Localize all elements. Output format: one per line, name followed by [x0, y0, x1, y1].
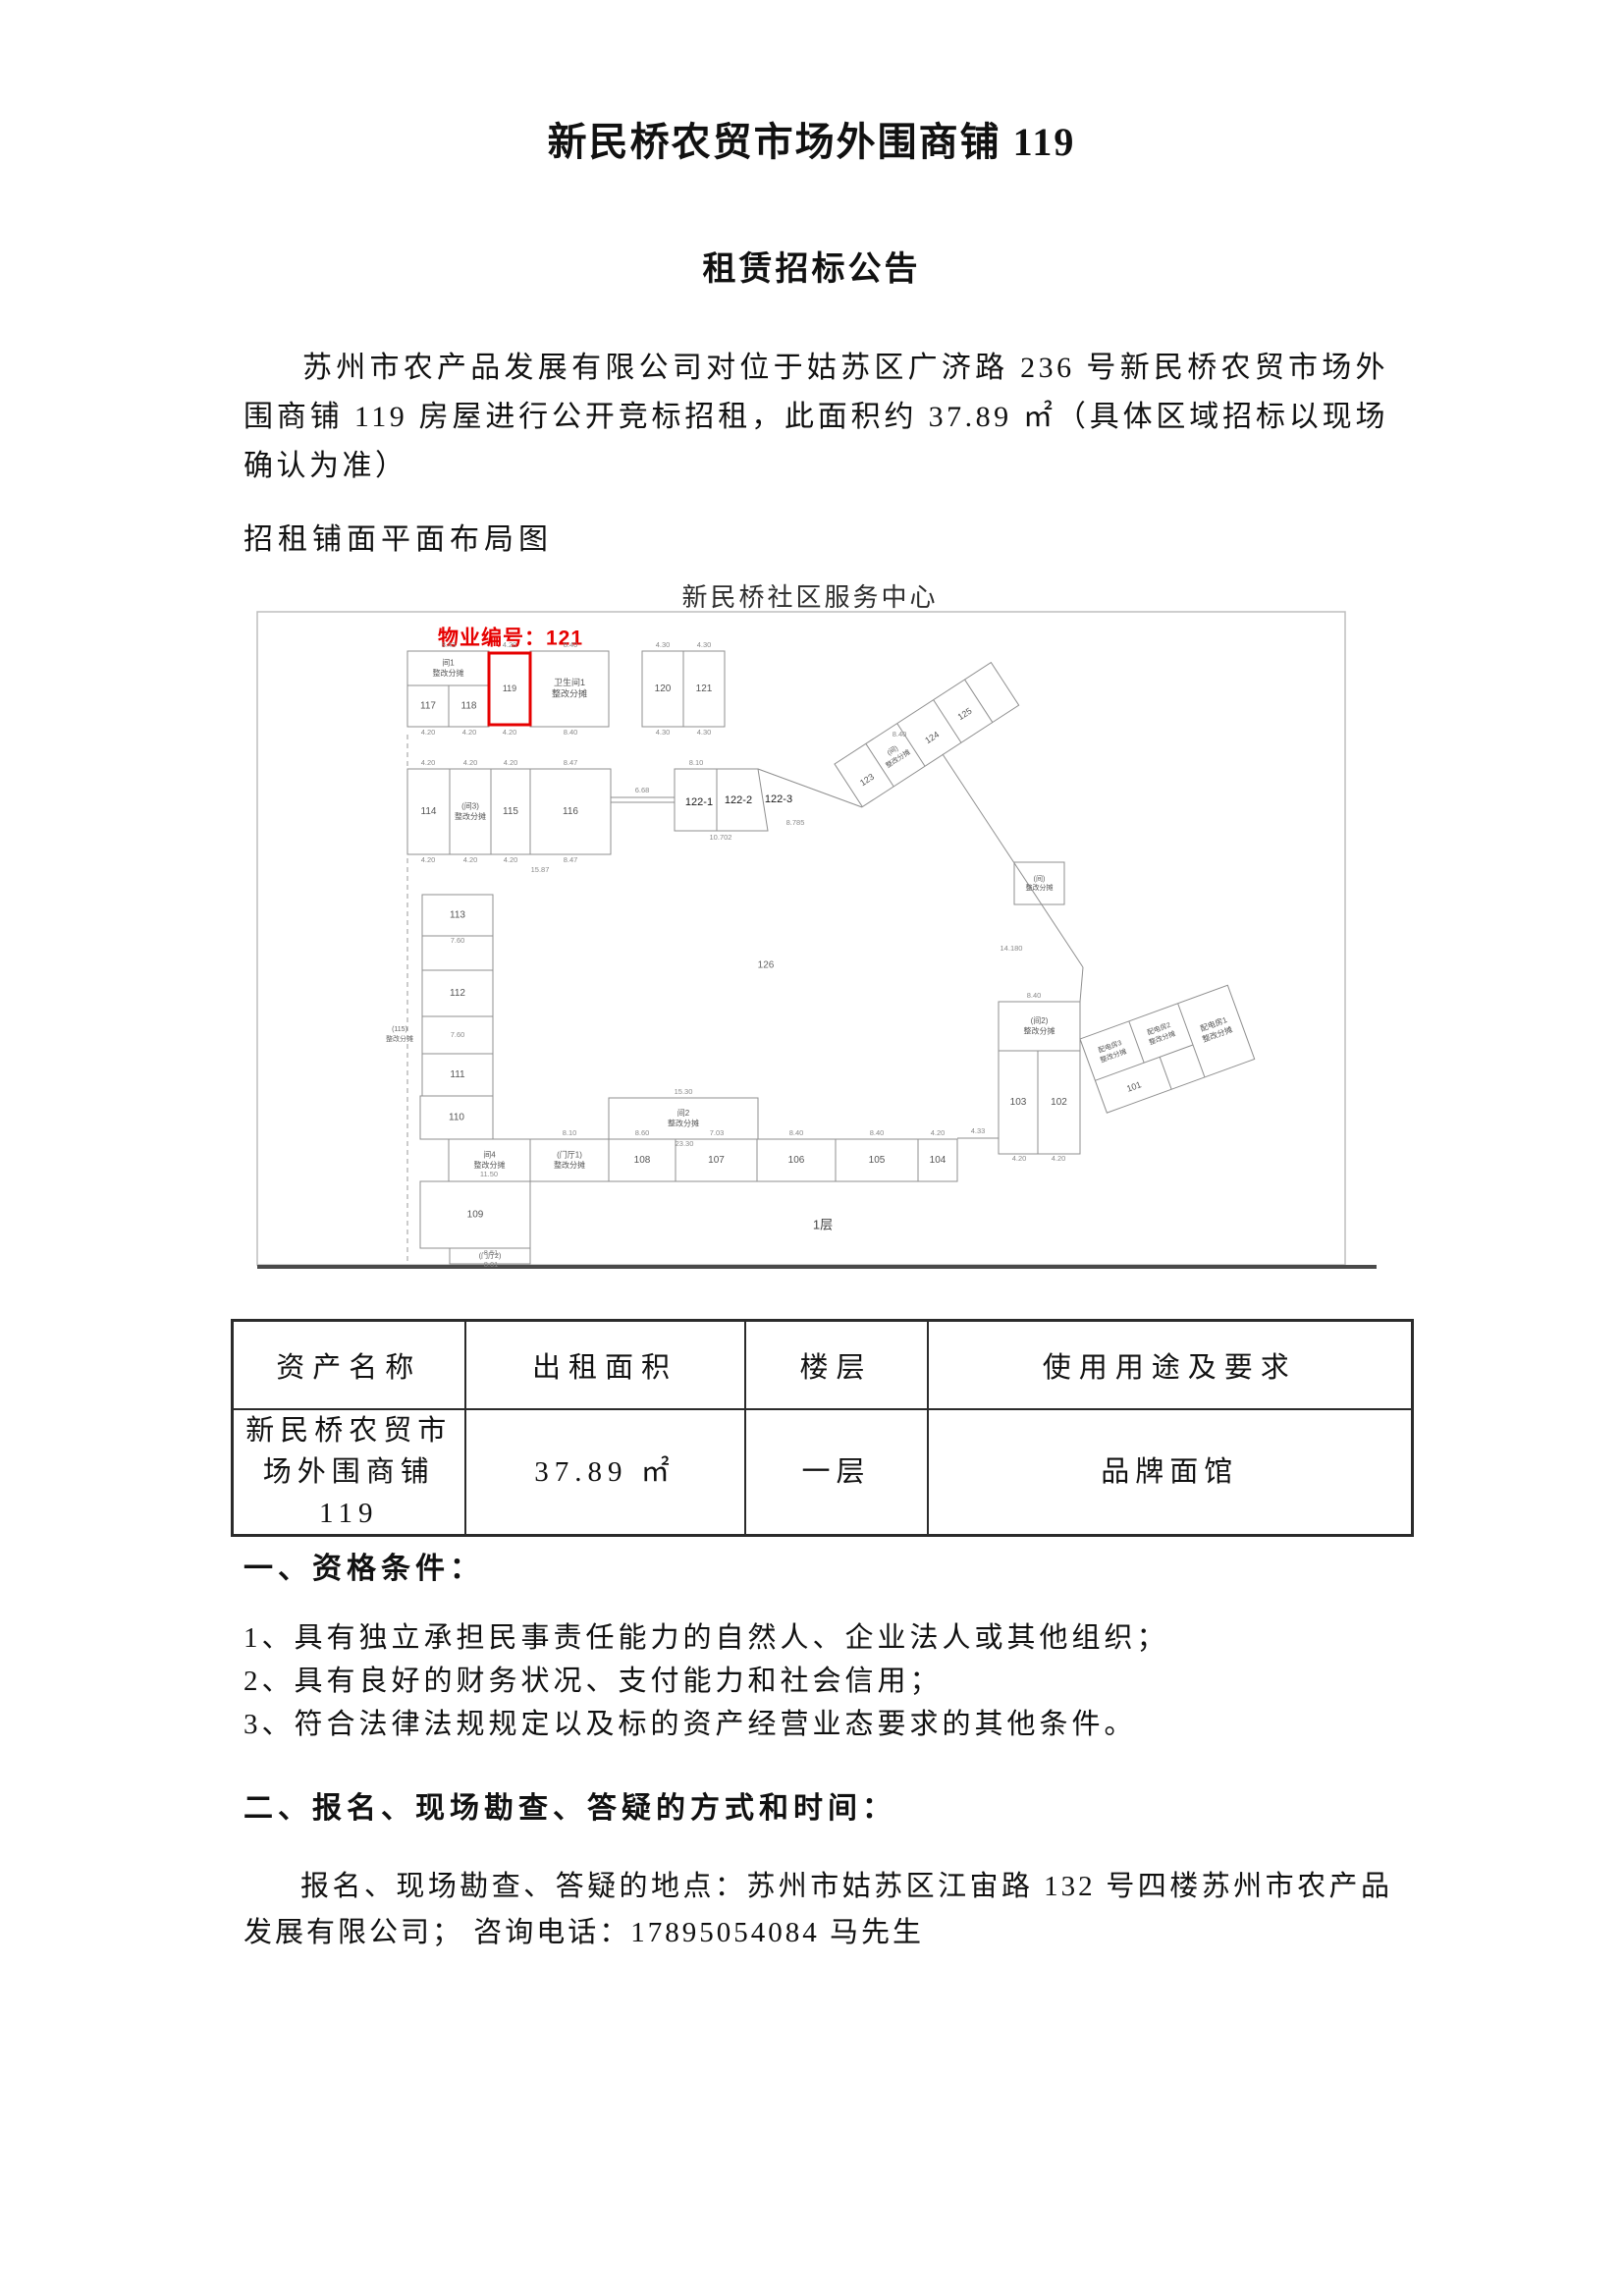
announcement-page: 新民桥农贸市场外围商铺 119 租赁招标公告 苏州市农产品发展有限公司对位于姑苏…: [0, 0, 1623, 2296]
cell-rent-area: 37.89 ㎡: [465, 1409, 745, 1536]
svg-text:7.60: 7.60: [451, 1030, 465, 1039]
svg-text:整改分摊: 整改分摊: [474, 1160, 506, 1170]
svg-text:126: 126: [758, 960, 775, 971]
svg-text:(间3): (间3): [461, 801, 479, 810]
svg-text:8.43: 8.43: [442, 640, 457, 649]
svg-text:整改分摊: 整改分摊: [552, 688, 587, 699]
svg-text:120: 120: [655, 683, 672, 694]
svg-text:113: 113: [450, 910, 465, 921]
svg-text:8.40: 8.40: [789, 1128, 804, 1137]
svg-text:4.30: 4.30: [656, 640, 671, 649]
qualification-item-1: 1、具有独立承担民事责任能力的自然人、企业法人或其他组织；: [243, 1616, 1402, 1660]
svg-text:新民桥社区服务中心: 新民桥社区服务中心: [681, 582, 938, 612]
column-header-asset-name: 资产名称: [233, 1321, 465, 1409]
cell-floor: 一层: [745, 1409, 928, 1536]
qualification-list: 1、具有独立承担民事责任能力的自然人、企业法人或其他组织； 2、具有良好的财务状…: [243, 1616, 1402, 1746]
svg-text:110: 110: [449, 1113, 464, 1123]
svg-text:121: 121: [696, 683, 713, 694]
svg-text:102: 102: [1051, 1097, 1067, 1108]
svg-text:4.20: 4.20: [504, 758, 518, 767]
svg-text:8.10: 8.10: [563, 1128, 577, 1137]
svg-text:8.47: 8.47: [564, 758, 578, 767]
cell-usage: 品牌面馆: [928, 1409, 1413, 1536]
svg-text:23.30: 23.30: [676, 1139, 694, 1148]
svg-text:6.68: 6.68: [635, 786, 650, 794]
svg-text:101: 101: [1125, 1079, 1143, 1094]
document-title: 新民桥农贸市场外围商铺 119: [0, 110, 1623, 167]
svg-text:间2: 间2: [677, 1109, 690, 1118]
svg-text:114: 114: [421, 806, 437, 817]
svg-text:(115): (115): [392, 1026, 407, 1033]
asset-table: 资产名称 出租面积 楼层 使用用途及要求 新民桥农贸市场外围商铺 119 37.…: [231, 1319, 1414, 1537]
svg-text:122-2: 122-2: [725, 794, 752, 806]
svg-text:4.20: 4.20: [1012, 1154, 1027, 1163]
svg-text:4.30: 4.30: [656, 728, 671, 737]
qualification-item-2: 2、具有良好的财务状况、支付能力和社会信用；: [243, 1660, 1402, 1703]
svg-text:8.40: 8.40: [564, 640, 578, 649]
svg-text:1层: 1层: [813, 1217, 833, 1231]
svg-text:8.60: 8.60: [635, 1128, 650, 1137]
floor-plan-svg: 间1整改分摊117118卫生间1整改分摊120121114(间3)整改分摊115…: [245, 577, 1394, 1282]
svg-text:7.03: 7.03: [710, 1128, 725, 1137]
svg-text:4.20: 4.20: [504, 855, 518, 864]
svg-text:4.20: 4.20: [463, 758, 478, 767]
svg-text:122-3: 122-3: [765, 793, 792, 805]
svg-text:118: 118: [461, 701, 477, 712]
svg-text:4.20: 4.20: [503, 728, 517, 737]
svg-text:间4: 间4: [483, 1150, 496, 1159]
column-header-usage: 使用用途及要求: [928, 1321, 1413, 1409]
table-row: 新民桥农贸市场外围商铺 119 37.89 ㎡ 一层 品牌面馆: [233, 1409, 1413, 1536]
svg-text:8.10: 8.10: [689, 758, 704, 767]
floor-plan: 间1整改分摊117118卫生间1整改分摊120121114(间3)整改分摊115…: [245, 577, 1394, 1282]
column-header-rent-area: 出租面积: [465, 1321, 745, 1409]
qualification-item-3: 3、符合法律法规规定以及标的资产经营业态要求的其他条件。: [243, 1703, 1402, 1746]
section-1-heading: 一、资格条件：: [243, 1544, 484, 1587]
svg-text:11.50: 11.50: [480, 1170, 498, 1178]
svg-text:117: 117: [420, 701, 436, 712]
svg-text:8.785: 8.785: [786, 818, 805, 827]
plan-caption: 招租铺面平面布局图: [243, 515, 553, 558]
svg-text:8.51: 8.51: [484, 1248, 499, 1257]
table-header-row: 资产名称 出租面积 楼层 使用用途及要求: [233, 1321, 1413, 1409]
document-subtitle: 租赁招标公告: [0, 242, 1623, 290]
svg-text:115: 115: [503, 806, 518, 817]
svg-text:整改分摊: 整改分摊: [455, 811, 486, 821]
cell-asset-name: 新民桥农贸市场外围商铺 119: [233, 1409, 465, 1536]
svg-text:整改分摊: 整改分摊: [668, 1118, 699, 1127]
svg-text:14.180: 14.180: [1001, 944, 1023, 953]
svg-text:105: 105: [869, 1155, 886, 1166]
svg-text:15.30: 15.30: [675, 1087, 693, 1096]
svg-text:8.40: 8.40: [870, 1128, 885, 1137]
svg-text:7.60: 7.60: [451, 936, 465, 945]
svg-text:108: 108: [634, 1155, 651, 1166]
svg-text:整改分摊: 整改分摊: [554, 1160, 585, 1170]
svg-text:整改分摊: 整改分摊: [433, 668, 464, 678]
svg-text:112: 112: [450, 988, 465, 999]
svg-text:116: 116: [563, 806, 578, 817]
column-header-floor: 楼层: [745, 1321, 928, 1409]
svg-text:4.20: 4.20: [1052, 1154, 1066, 1163]
svg-text:4.20: 4.20: [463, 855, 478, 864]
svg-text:8.40: 8.40: [1027, 991, 1042, 1000]
svg-text:整改分摊: 整改分摊: [1024, 1025, 1055, 1035]
svg-text:106: 106: [788, 1155, 805, 1166]
svg-text:104: 104: [930, 1155, 947, 1166]
svg-text:8.40: 8.40: [893, 730, 907, 738]
svg-text:10.702: 10.702: [710, 833, 732, 842]
svg-text:109: 109: [467, 1210, 484, 1221]
svg-text:4.20: 4.20: [503, 640, 517, 649]
svg-text:111: 111: [450, 1069, 465, 1080]
svg-text:(间): (间): [1034, 875, 1046, 883]
svg-text:122-1: 122-1: [685, 796, 713, 808]
svg-text:整改分摊: 整改分摊: [1026, 883, 1054, 892]
svg-text:107: 107: [708, 1155, 725, 1166]
contact-paragraph: 报名、现场勘查、答疑的地点：苏州市姑苏区江宙路 132 号四楼苏州市农产品发展有…: [243, 1864, 1392, 1956]
svg-text:(间2): (间2): [1031, 1016, 1049, 1025]
svg-text:103: 103: [1010, 1097, 1027, 1108]
svg-text:4.20: 4.20: [931, 1128, 946, 1137]
svg-text:124: 124: [923, 730, 941, 746]
svg-text:整改分摊: 整改分摊: [386, 1034, 413, 1043]
svg-text:4.20: 4.20: [462, 728, 477, 737]
svg-text:119: 119: [503, 683, 516, 693]
svg-text:8.01: 8.01: [484, 1260, 499, 1269]
intro-paragraph: 苏州市农产品发展有限公司对位于姑苏区广济路 236 号新民桥农贸市场外围商铺 1…: [243, 344, 1388, 491]
svg-text:4.30: 4.30: [697, 728, 712, 737]
svg-text:4.30: 4.30: [697, 640, 712, 649]
svg-text:4.20: 4.20: [421, 728, 436, 737]
svg-text:123: 123: [858, 772, 876, 789]
svg-text:125: 125: [956, 706, 974, 723]
svg-text:4.33: 4.33: [971, 1126, 986, 1135]
svg-text:卫生间1: 卫生间1: [554, 677, 585, 687]
section-2-heading: 二、报名、现场勘查、答疑的方式和时间：: [243, 1783, 896, 1827]
svg-text:(门厅1): (门厅1): [557, 1149, 582, 1159]
svg-text:间1: 间1: [442, 658, 455, 667]
svg-text:8.40: 8.40: [564, 728, 578, 737]
svg-text:8.47: 8.47: [564, 855, 578, 864]
svg-text:4.20: 4.20: [421, 855, 436, 864]
svg-text:4.20: 4.20: [421, 758, 436, 767]
svg-text:15.87: 15.87: [531, 865, 550, 874]
